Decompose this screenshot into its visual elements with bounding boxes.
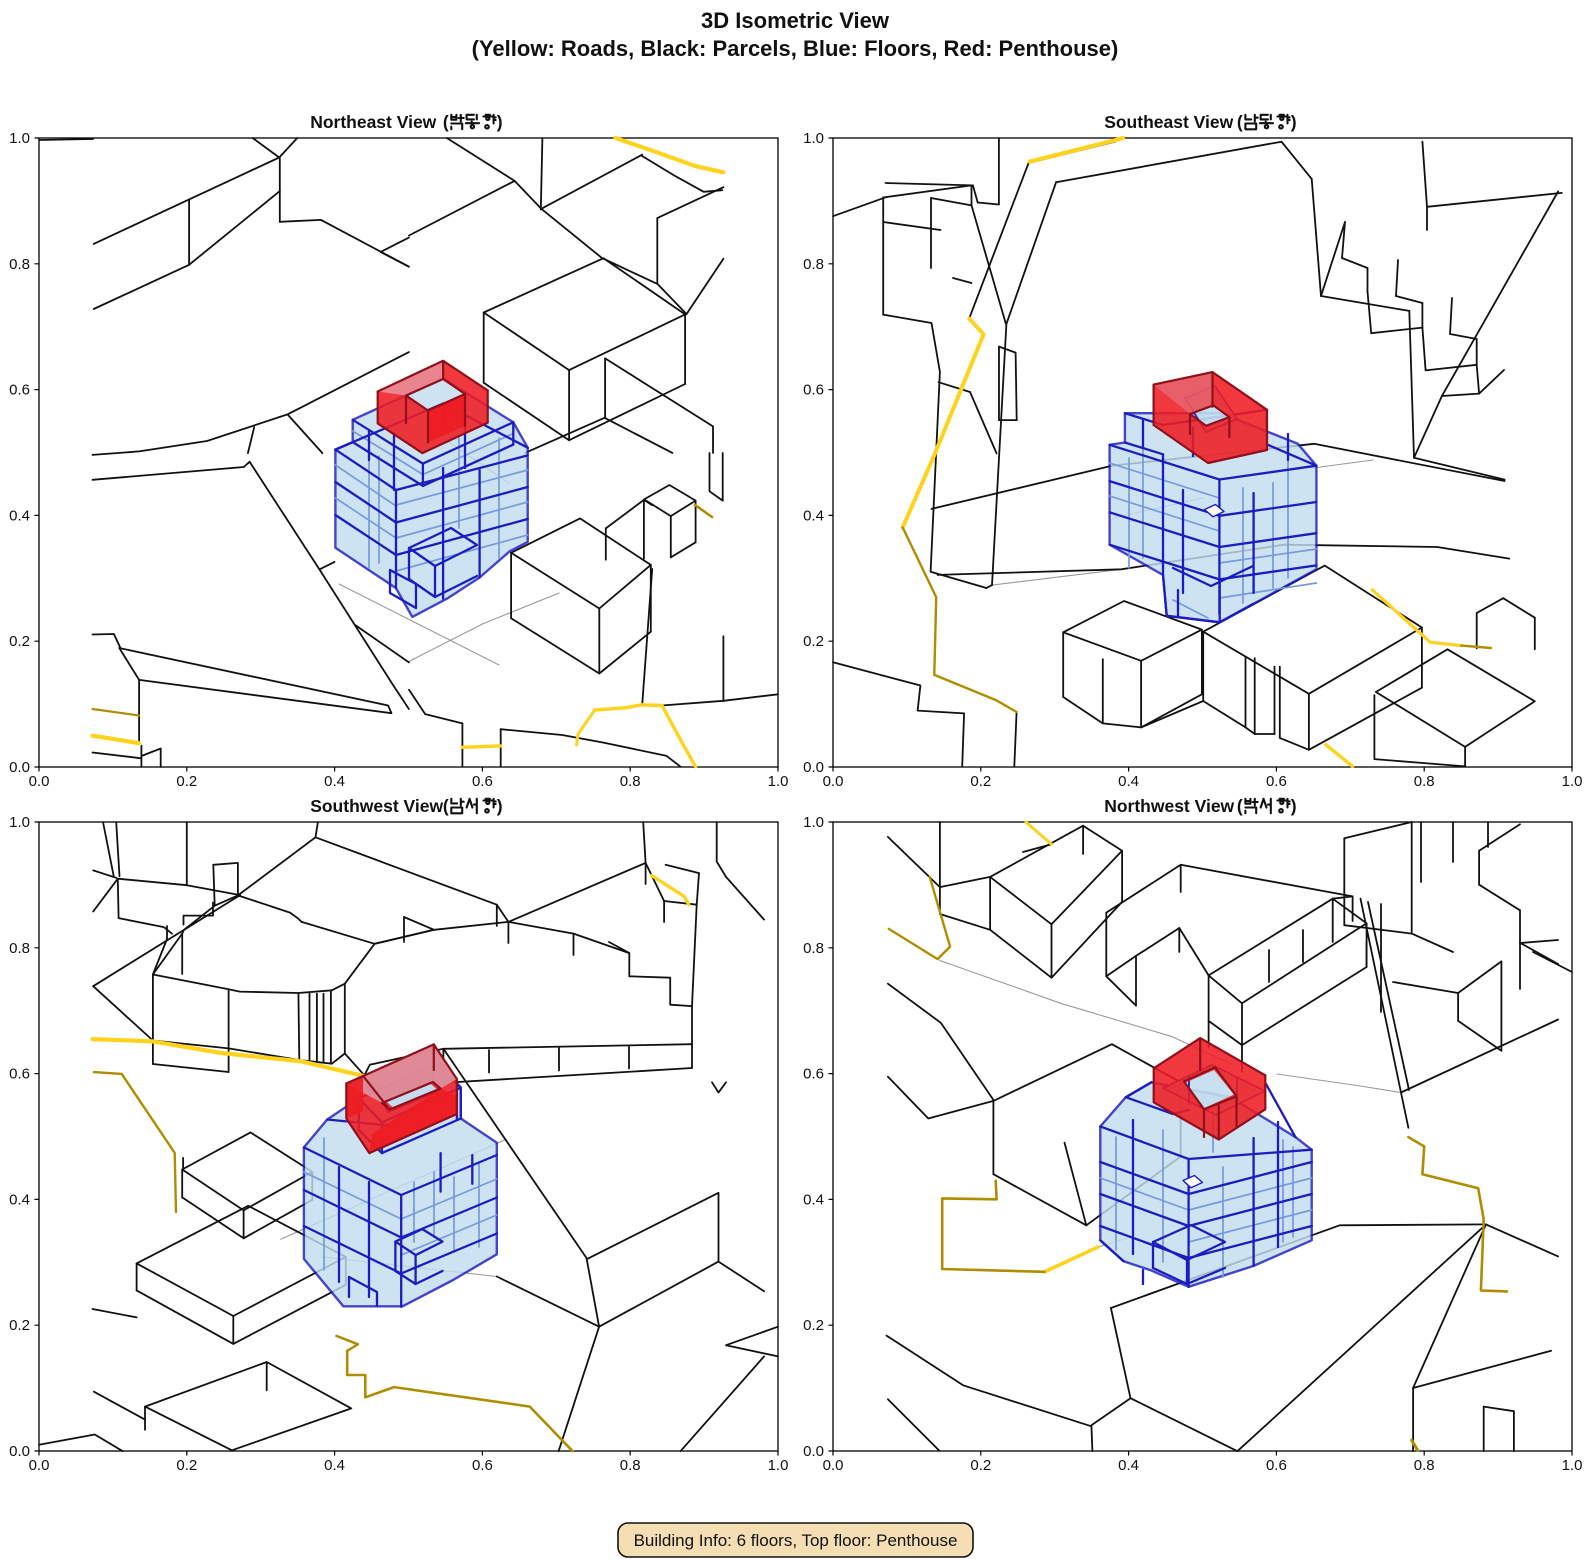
svg-text:0.0: 0.0 xyxy=(823,1457,844,1474)
svg-text:0.2: 0.2 xyxy=(9,1317,30,1334)
svg-text:Northeast View: Northeast View xyxy=(310,112,436,132)
svg-text:0.6: 0.6 xyxy=(803,382,824,399)
svg-text:0.0: 0.0 xyxy=(9,1443,30,1460)
svg-text:): ) xyxy=(497,112,503,132)
svg-text:0.0: 0.0 xyxy=(9,759,30,776)
svg-text:0.8: 0.8 xyxy=(803,940,824,957)
svg-text:Southeast View: Southeast View xyxy=(1104,112,1233,132)
svg-text:1.0: 1.0 xyxy=(803,130,824,147)
svg-text:0.2: 0.2 xyxy=(9,633,30,650)
svg-text:0.2: 0.2 xyxy=(970,773,991,790)
svg-text:0.2: 0.2 xyxy=(803,1317,824,1334)
svg-text:0.6: 0.6 xyxy=(1266,1457,1287,1474)
svg-text:0.0: 0.0 xyxy=(823,773,844,790)
svg-text:0.4: 0.4 xyxy=(9,507,30,524)
svg-text:0.4: 0.4 xyxy=(1118,773,1139,790)
svg-text:1.0: 1.0 xyxy=(9,130,30,147)
svg-text:1.0: 1.0 xyxy=(1562,1457,1583,1474)
svg-text:1.0: 1.0 xyxy=(768,1457,789,1474)
svg-text:0.8: 0.8 xyxy=(620,1457,641,1474)
svg-text:0.8: 0.8 xyxy=(620,773,641,790)
svg-text:0.4: 0.4 xyxy=(803,1191,824,1208)
svg-text:0.2: 0.2 xyxy=(176,773,197,790)
svg-text:0.4: 0.4 xyxy=(324,1457,345,1474)
svg-text:Northwest View: Northwest View xyxy=(1104,796,1234,816)
svg-text:(: ( xyxy=(1237,112,1243,132)
svg-text:0.2: 0.2 xyxy=(970,1457,991,1474)
svg-text:0.0: 0.0 xyxy=(29,773,50,790)
svg-text:): ) xyxy=(1291,112,1297,132)
svg-text:0.6: 0.6 xyxy=(472,1457,493,1474)
svg-text:0.8: 0.8 xyxy=(9,940,30,957)
svg-text:0.6: 0.6 xyxy=(1266,773,1287,790)
svg-text:1.0: 1.0 xyxy=(803,814,824,831)
svg-text:1.0: 1.0 xyxy=(1562,773,1583,790)
svg-text:): ) xyxy=(497,796,503,816)
svg-text:0.0: 0.0 xyxy=(803,759,824,776)
svg-text:0.4: 0.4 xyxy=(324,773,345,790)
svg-text:0.6: 0.6 xyxy=(9,1066,30,1083)
svg-text:0.2: 0.2 xyxy=(176,1457,197,1474)
svg-text:Building Info: 6 floors, Top f: Building Info: 6 floors, Top floor: Pent… xyxy=(634,1531,958,1550)
svg-text:1.0: 1.0 xyxy=(9,814,30,831)
svg-text:0.4: 0.4 xyxy=(803,507,824,524)
svg-text:Southwest View: Southwest View xyxy=(310,796,443,816)
svg-text:0.2: 0.2 xyxy=(803,633,824,650)
svg-text:(: ( xyxy=(443,796,449,816)
svg-text:0.8: 0.8 xyxy=(803,256,824,273)
svg-text:0.6: 0.6 xyxy=(9,382,30,399)
svg-text:0.0: 0.0 xyxy=(29,1457,50,1474)
svg-text:(: ( xyxy=(1237,796,1243,816)
svg-text:0.8: 0.8 xyxy=(9,256,30,273)
svg-text:(: ( xyxy=(443,112,449,132)
svg-text:0.0: 0.0 xyxy=(803,1443,824,1460)
svg-text:3D Isometric View: 3D Isometric View xyxy=(701,8,890,33)
svg-text:0.6: 0.6 xyxy=(803,1066,824,1083)
svg-text:): ) xyxy=(1291,796,1297,816)
svg-text:0.8: 0.8 xyxy=(1414,1457,1435,1474)
svg-text:0.4: 0.4 xyxy=(1118,1457,1139,1474)
svg-text:1.0: 1.0 xyxy=(768,773,789,790)
svg-text:0.8: 0.8 xyxy=(1414,773,1435,790)
svg-text:0.4: 0.4 xyxy=(9,1191,30,1208)
svg-text:0.6: 0.6 xyxy=(472,773,493,790)
svg-text:(Yellow: Roads, Black: Parcels: (Yellow: Roads, Black: Parcels, Blue: Fl… xyxy=(472,36,1119,61)
